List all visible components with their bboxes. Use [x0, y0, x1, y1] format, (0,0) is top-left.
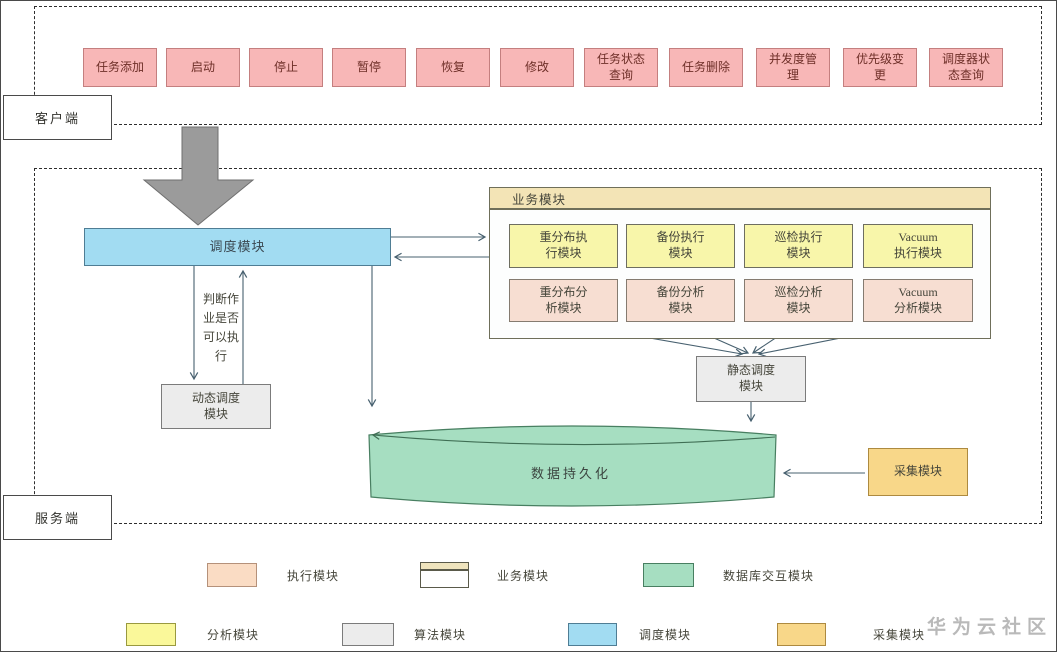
decision-note: 判断作 业是否 可以执 行	[192, 290, 250, 366]
backup-exec-module: 备份执行 模块	[626, 224, 735, 268]
scheduler-module: 调度模块	[84, 228, 391, 266]
client-btn-concurrency-mgmt: 并发度管 理	[756, 48, 830, 87]
legend-swatch-exec	[207, 563, 257, 587]
legend-swatch-algorithm	[342, 623, 394, 646]
business-module-title: 业务模块	[490, 188, 990, 210]
client-btn-task-delete: 任务删除	[669, 48, 743, 87]
legend-label-analysis: 分析模块	[207, 623, 259, 646]
client-btn-task-status-query: 任务状态 查询	[584, 48, 658, 87]
inspection-analysis-module: 巡检分析 模块	[744, 279, 853, 322]
legend-swatch-business-header-strip	[421, 563, 468, 571]
legend-label-scheduler: 调度模块	[639, 623, 691, 646]
client-btn-pause: 暂停	[332, 48, 406, 87]
client-btn-resume: 恢复	[416, 48, 490, 87]
legend-label-exec: 执行模块	[287, 563, 339, 587]
legend-swatch-analysis	[126, 623, 176, 646]
legend-swatch-collector	[777, 623, 826, 646]
architecture-diagram: 任务添加 启动 停止 暂停 恢复 修改 任务状态 查询 任务删除 并发度管 理 …	[0, 0, 1057, 652]
legend-label-algorithm: 算法模块	[414, 623, 466, 646]
big-down-arrow-icon	[144, 127, 253, 225]
huawei-cloud-watermark: 华为云社区	[927, 612, 1052, 639]
client-btn-stop: 停止	[249, 48, 323, 87]
client-btn-scheduler-status-query: 调度器状 态查询	[929, 48, 1003, 87]
vacuum-analysis-module: Vacuum 分析模块	[863, 279, 973, 322]
legend-swatch-scheduler	[568, 623, 617, 646]
legend-swatch-database	[643, 563, 694, 587]
persistence-label: 数据持久化	[491, 463, 651, 482]
client-btn-priority-change: 优先级变 更	[843, 48, 917, 87]
redistribute-exec-module: 重分布执 行模块	[509, 224, 618, 268]
dynamic-scheduler-module: 动态调度 模块	[161, 384, 271, 429]
client-zone-label: 客户端	[3, 95, 112, 140]
legend-label-database: 数据库交互模块	[723, 563, 814, 587]
collector-module: 采集模块	[868, 448, 968, 496]
legend-swatch-business	[420, 562, 469, 588]
static-scheduler-module: 静态调度 模块	[696, 356, 806, 402]
inspection-exec-module: 巡检执行 模块	[744, 224, 853, 268]
legend-label-collector: 采集模块	[873, 623, 925, 646]
server-zone-label: 服务端	[3, 495, 112, 540]
client-btn-start: 启动	[166, 48, 240, 87]
legend-label-business: 业务模块	[497, 563, 549, 587]
redistribute-analysis-module: 重分布分 析模块	[509, 279, 618, 322]
vacuum-exec-module: Vacuum 执行模块	[863, 224, 973, 268]
client-btn-modify: 修改	[500, 48, 574, 87]
client-btn-task-add: 任务添加	[83, 48, 157, 87]
backup-analysis-module: 备份分析 模块	[626, 279, 735, 322]
